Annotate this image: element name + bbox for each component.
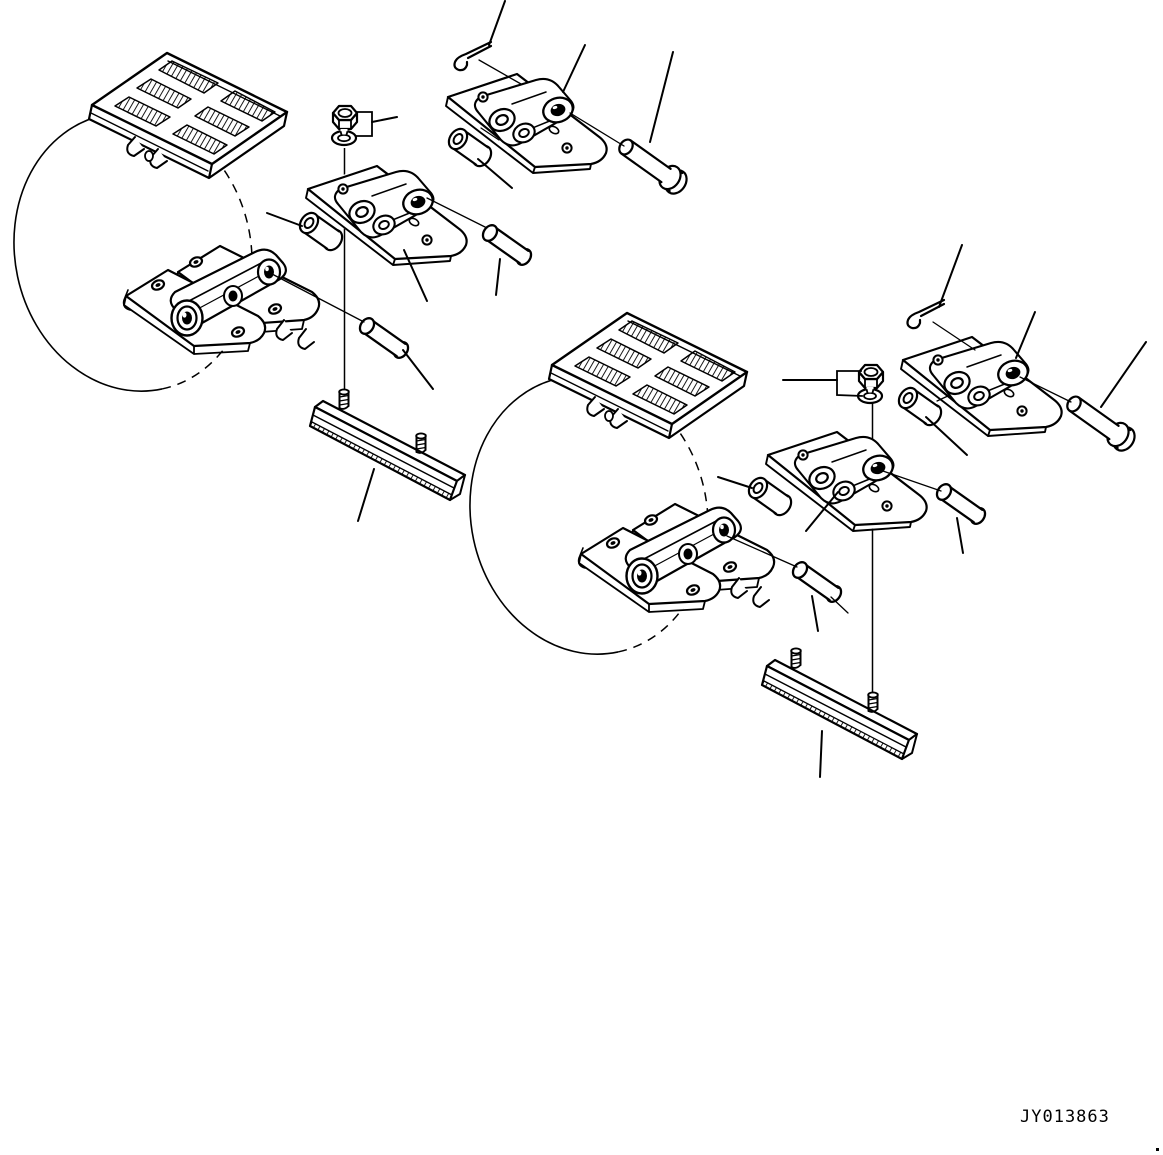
leader-line bbox=[957, 518, 963, 553]
leader-line bbox=[496, 259, 500, 295]
leader-line bbox=[358, 469, 374, 521]
rubber-pad-shoe-left bbox=[89, 53, 287, 178]
double-track-link-right bbox=[577, 502, 781, 618]
pin-right-upper bbox=[934, 481, 988, 526]
leader-line bbox=[563, 45, 585, 92]
lock-washer-right bbox=[858, 387, 882, 403]
diagram-page: JY013863 bbox=[0, 0, 1163, 1155]
leader-line bbox=[267, 213, 302, 226]
leader-line bbox=[926, 417, 967, 455]
leader-line bbox=[718, 477, 752, 488]
master-pin-top-right bbox=[1064, 394, 1138, 455]
track-shoe-plate-right bbox=[762, 648, 917, 760]
master-pin-top-center bbox=[616, 137, 690, 198]
pin-left-lower bbox=[357, 315, 411, 360]
callout-bracket bbox=[356, 112, 372, 136]
leader-line bbox=[1101, 342, 1146, 407]
figure-code-label: JY013863 bbox=[1020, 1107, 1110, 1127]
leader-line bbox=[939, 245, 962, 307]
cotter-pin-top-right bbox=[908, 300, 945, 328]
leader-line bbox=[812, 596, 818, 631]
track-link-right bbox=[764, 429, 932, 531]
pin-left-upper bbox=[480, 222, 534, 267]
track-shoe-plate-left bbox=[310, 389, 465, 501]
print-artifact-dot bbox=[1156, 1148, 1159, 1151]
pin-right-lower bbox=[790, 559, 844, 604]
alignment-line bbox=[831, 597, 848, 613]
leader-line bbox=[403, 350, 433, 389]
rubber-pad-shoe-right bbox=[549, 313, 747, 438]
leader-line bbox=[372, 117, 397, 122]
lock-washer-left bbox=[332, 129, 356, 145]
hex-nut-right bbox=[859, 365, 883, 388]
leader-line bbox=[650, 52, 673, 142]
parts-diagram-canvas: JY013863 bbox=[0, 0, 1163, 1155]
leader-line bbox=[820, 731, 822, 777]
leader-line bbox=[478, 159, 512, 188]
hex-nut-left bbox=[333, 106, 357, 129]
double-track-link-left bbox=[122, 244, 326, 360]
leader-line bbox=[489, 1, 505, 45]
leader-line bbox=[1016, 312, 1035, 358]
cotter-pin-top-center bbox=[455, 42, 492, 70]
